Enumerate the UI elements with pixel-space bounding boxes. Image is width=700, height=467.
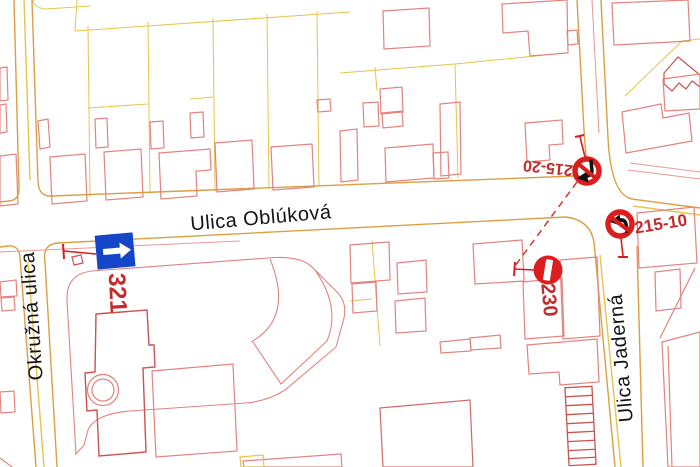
sign-code-label-321: 321: [103, 272, 132, 313]
sign-pole: [514, 269, 534, 270]
sign-pole: [64, 251, 96, 254]
sign-code-label-215-10: 215-10: [633, 210, 688, 237]
sign-group-215-20: 215-20: [522, 135, 600, 184]
buildings: [0, 0, 700, 467]
traffic-plan-svg: Ulica Oblúková Okružná ulica Ulica Jader…: [0, 0, 700, 467]
road-network: [0, 0, 700, 467]
map-canvas: Ulica Oblúková Okružná ulica Ulica Jader…: [0, 0, 700, 467]
street-label-okruzna-ulica: Okružná ulica: [17, 251, 48, 381]
sign-group-215-10: 215-10: [606, 210, 688, 257]
sign-pole-anchor: [575, 135, 584, 137]
no-left-turn-sign-icon: [606, 210, 633, 237]
relocation-dashed-line: [515, 182, 577, 266]
sign-group-321: 321: [63, 232, 135, 313]
sign-pole: [621, 238, 623, 256]
no-left-turn-sign-icon: [574, 158, 600, 184]
sign-pole-anchor: [63, 244, 64, 259]
sign-code-label-230: 230: [536, 282, 561, 317]
sign-code-label-215-20: 215-20: [522, 156, 573, 178]
sign-post-base: [72, 255, 83, 265]
one-way-sign-icon: [95, 232, 136, 269]
hatched-stairs-structure: [565, 386, 596, 465]
no-entry-sign-icon: [534, 256, 563, 285]
